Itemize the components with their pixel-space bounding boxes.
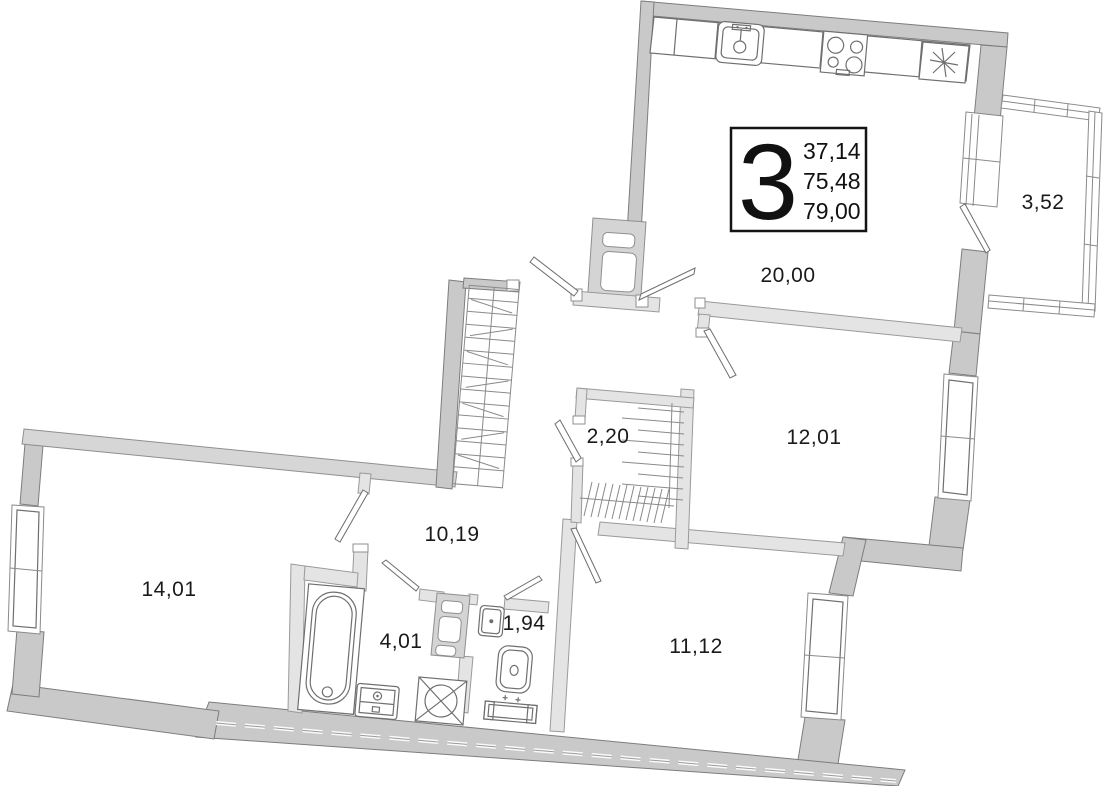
- door-room11: [571, 528, 601, 583]
- rooms-count: 3: [738, 121, 798, 242]
- vent-slot: [600, 251, 637, 292]
- wall-hallway-nw: [22, 429, 457, 487]
- wall-closet-left-upper: [575, 388, 587, 420]
- stove-icon: [820, 31, 867, 77]
- washing-machine-icon: [415, 677, 467, 725]
- bathtub-icon: [298, 584, 365, 714]
- wall-closet-left-lower: [571, 461, 583, 523]
- door-wc: [504, 576, 542, 600]
- label-wc: 1,94: [503, 612, 546, 635]
- wall-east-mid: [954, 249, 988, 334]
- vent-slot: [435, 645, 456, 657]
- area-value: 75,48: [803, 168, 861, 194]
- wall-12-west: [675, 389, 694, 549]
- window-room14-west: [8, 505, 44, 634]
- window-room12-east: [938, 374, 978, 501]
- label-kitchen-living: 20,00: [760, 264, 815, 287]
- apartment-info-stamp: 3 37,14 75,48 79,00: [731, 121, 866, 242]
- cap-closet-upper: [573, 416, 585, 424]
- wall-11-north: [598, 522, 845, 556]
- vent-slot: [602, 232, 635, 248]
- window-kitchen-balcony: [960, 112, 1003, 207]
- wall-12-east-lower: [929, 497, 970, 550]
- sink-icon: [715, 21, 764, 66]
- wall-12-north: [698, 301, 962, 342]
- toilet-icon: [484, 644, 542, 723]
- wall-kitchen-west: [626, 1, 654, 252]
- cap-12-north: [695, 298, 705, 308]
- label-closet: 2,20: [587, 425, 630, 448]
- wc-sink-icon: [478, 605, 505, 637]
- label-bedroom-left: 14,01: [141, 578, 196, 601]
- wall-ne-corner: [974, 45, 1007, 121]
- window-room11-east: [801, 593, 848, 720]
- living-area-value: 37,14: [803, 138, 861, 164]
- wall-14-west-lower: [12, 629, 44, 697]
- floor-plan: 20,00 3,52 12,01 2,20 10,19 14,01 4,01 1…: [0, 0, 1106, 786]
- floor-plan-drawing: 20,00 3,52 12,01 2,20 10,19 14,01 4,01 1…: [0, 0, 1106, 786]
- door-entrance-left: [530, 257, 578, 296]
- label-bedroom-right: 12,01: [786, 426, 841, 449]
- label-bedroom-bottom: 11,12: [669, 635, 723, 658]
- door-closet: [555, 420, 581, 462]
- label-bathroom: 4,01: [380, 630, 423, 653]
- fridge-icon: [919, 42, 969, 83]
- vent-slot: [438, 616, 462, 643]
- wall-closet-top: [576, 388, 694, 408]
- cap-14-column: [353, 544, 368, 552]
- wall-wc-11-divider: [550, 519, 577, 732]
- wall-wc-north: [504, 598, 549, 613]
- label-balcony: 3,52: [1022, 191, 1065, 214]
- door-entrance-right: [639, 268, 695, 300]
- door-balcony: [960, 204, 990, 253]
- door-room12: [704, 329, 736, 378]
- vent-slot: [441, 600, 463, 614]
- door-room14: [335, 490, 368, 542]
- label-hallway: 10,19: [424, 523, 479, 546]
- closet-shelves-hatch: [580, 403, 684, 523]
- door-bathroom: [382, 560, 419, 591]
- bath-sink-cabinet-icon: [355, 683, 400, 720]
- wall-wardrobe-west: [436, 280, 466, 489]
- total-area-value: 79,00: [803, 198, 861, 224]
